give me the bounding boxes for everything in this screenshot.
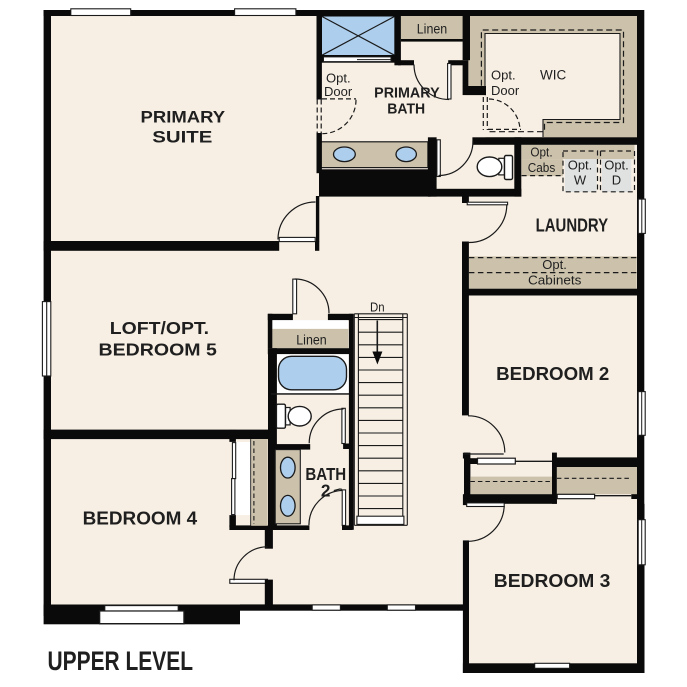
svg-text:Linen: Linen <box>296 332 327 348</box>
svg-text:PRIMARY: PRIMARY <box>374 86 440 102</box>
svg-text:W: W <box>574 172 587 187</box>
svg-text:UPPER LEVEL: UPPER LEVEL <box>48 646 194 676</box>
svg-text:Opt.: Opt. <box>604 158 629 173</box>
svg-text:WIC: WIC <box>540 68 566 83</box>
svg-text:BEDROOM 2: BEDROOM 2 <box>496 363 609 384</box>
svg-text:BATH: BATH <box>387 102 425 118</box>
svg-text:Door: Door <box>491 83 520 98</box>
svg-text:LAUNDRY: LAUNDRY <box>536 215 609 236</box>
svg-text:Dn: Dn <box>370 300 385 314</box>
svg-text:Opt.: Opt. <box>568 158 593 173</box>
svg-text:BEDROOM 5: BEDROOM 5 <box>99 340 217 360</box>
svg-text:LOFT/OPT.: LOFT/OPT. <box>110 318 209 338</box>
svg-text:Opt.: Opt. <box>491 68 516 83</box>
svg-text:D: D <box>612 172 621 187</box>
svg-text:Linen: Linen <box>417 21 448 37</box>
svg-text:Cabinets: Cabinets <box>528 273 582 288</box>
svg-text:PRIMARY: PRIMARY <box>141 108 226 126</box>
svg-text:Opt.: Opt. <box>530 145 552 160</box>
svg-text:BEDROOM 3: BEDROOM 3 <box>494 570 611 591</box>
svg-text:Opt.: Opt. <box>542 257 567 272</box>
svg-text:Door: Door <box>324 84 353 99</box>
svg-text:Cabs: Cabs <box>528 160 556 175</box>
svg-text:SUITE: SUITE <box>152 128 212 146</box>
svg-text:2: 2 <box>321 481 331 501</box>
svg-text:BEDROOM 4: BEDROOM 4 <box>83 508 198 529</box>
